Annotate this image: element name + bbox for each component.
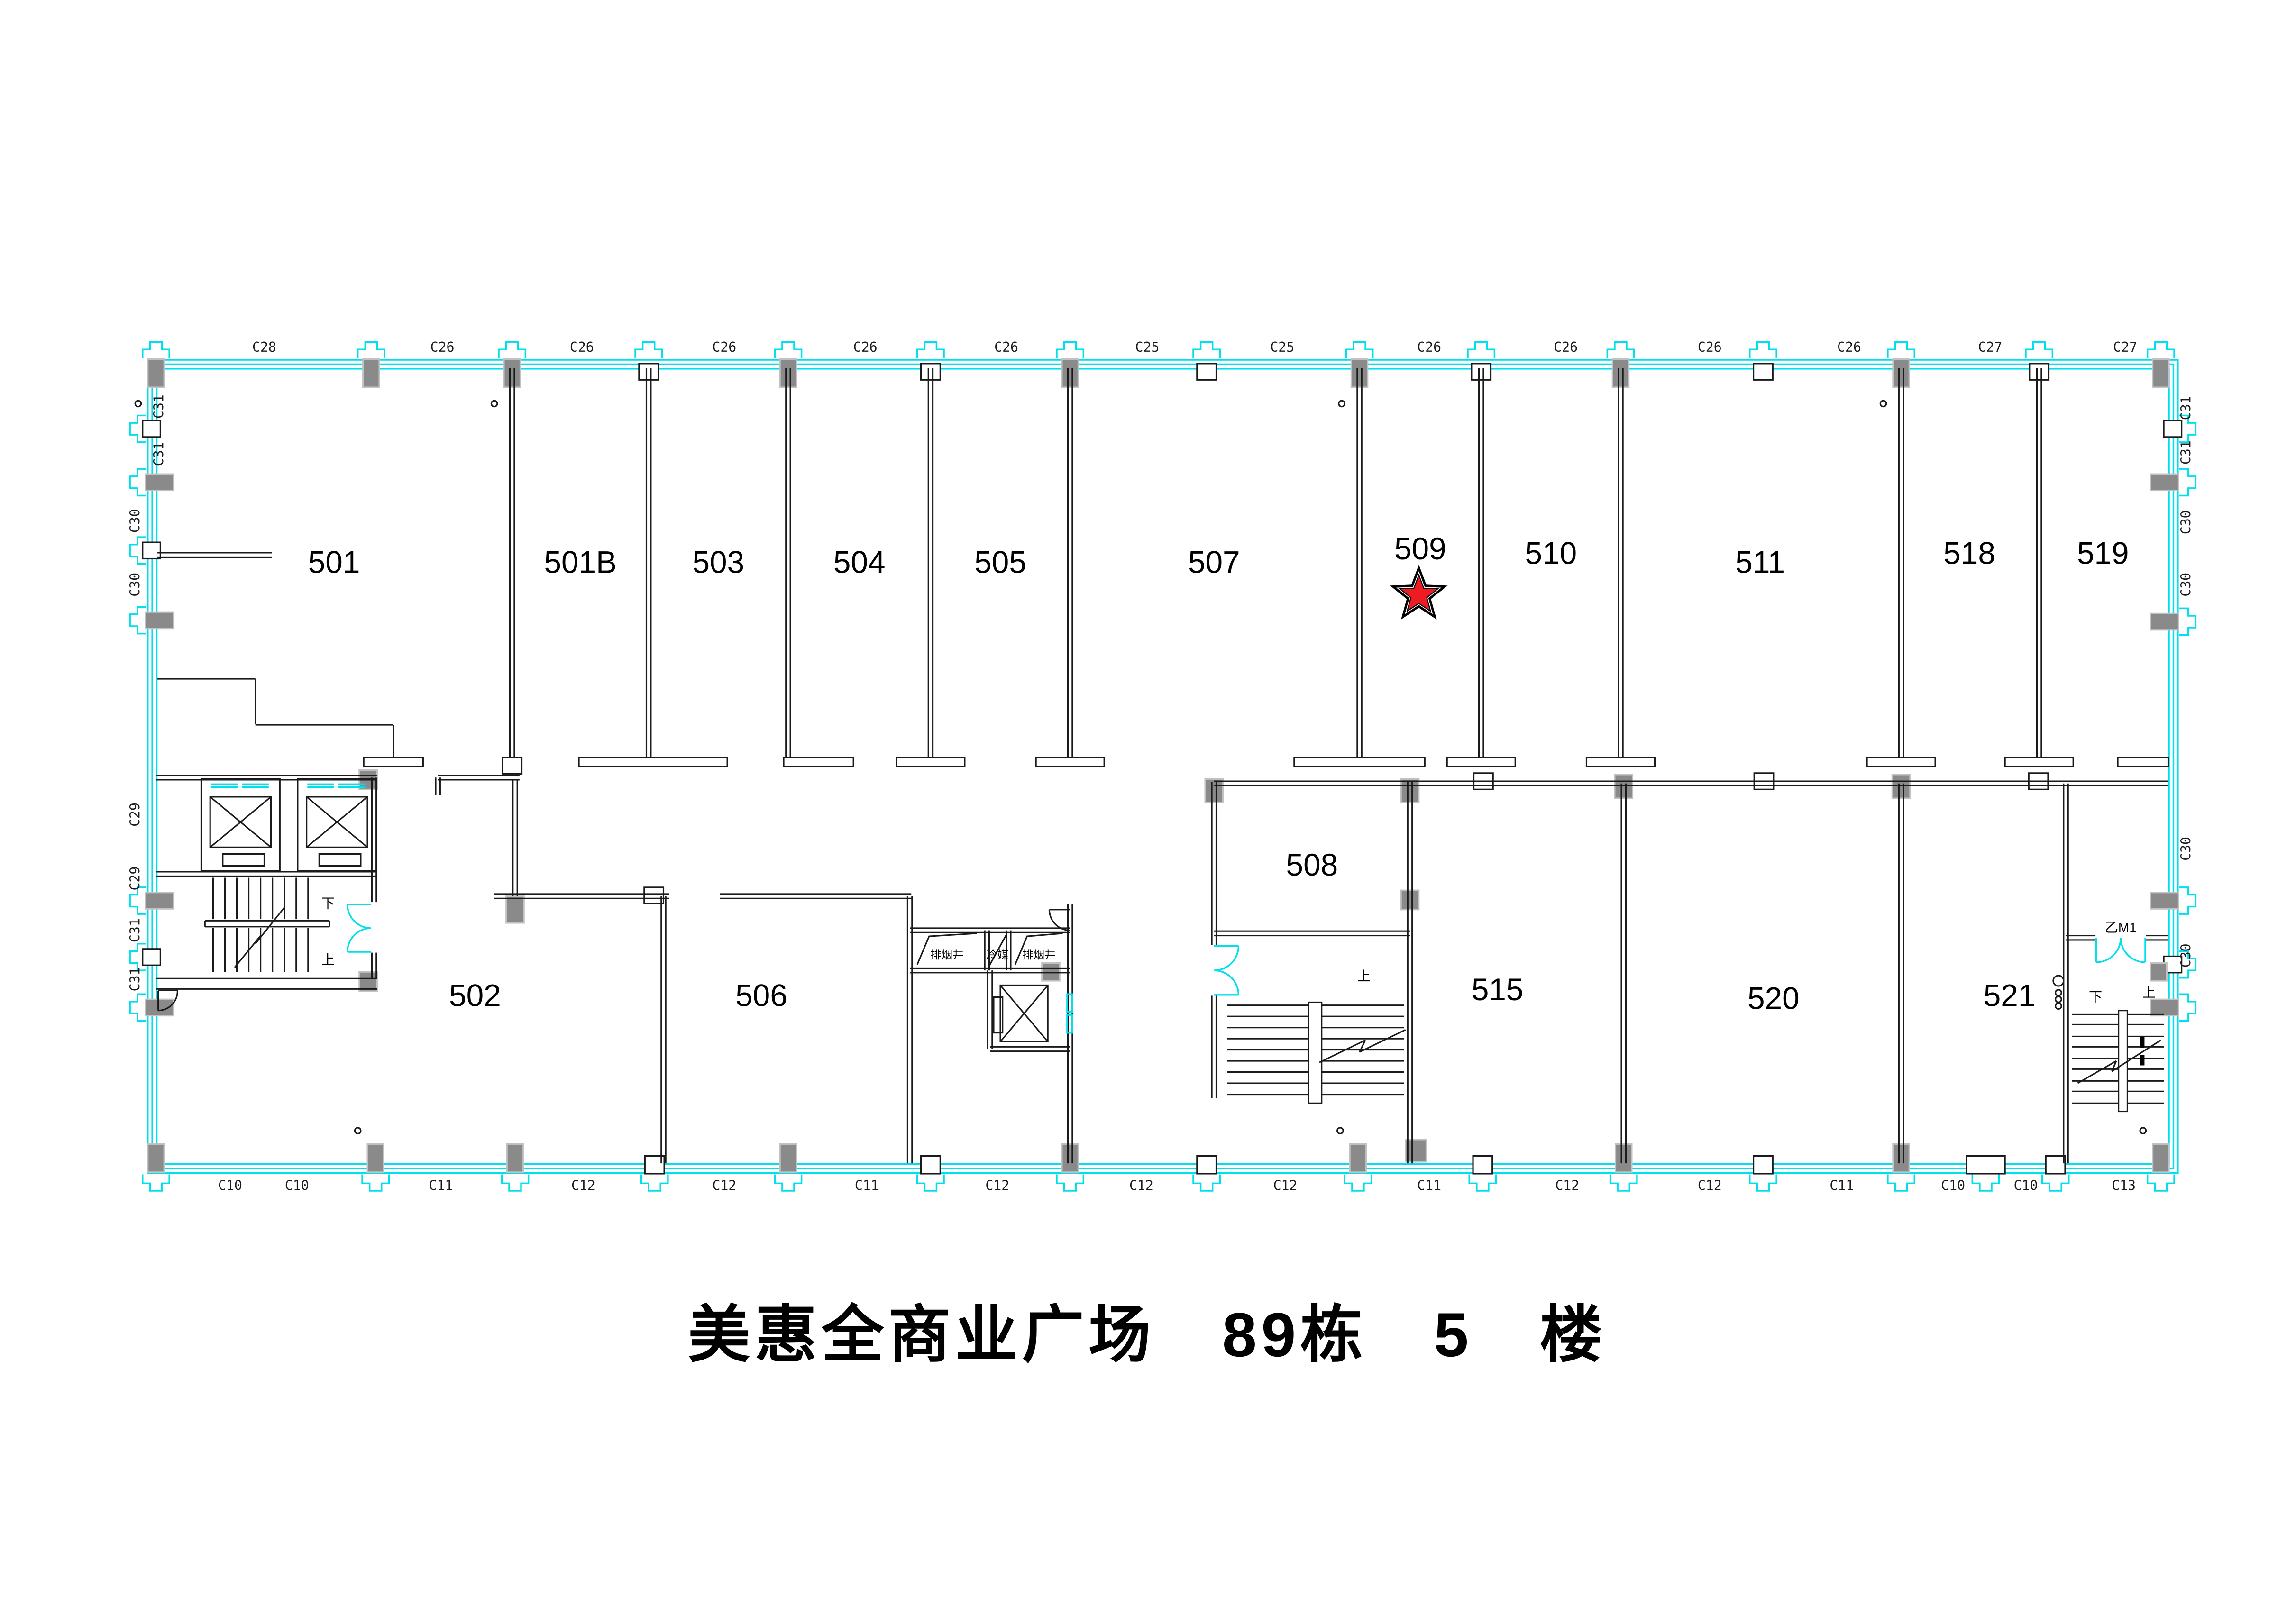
refrigerant-shaft-label: 冷媒 — [986, 949, 1008, 961]
room-label-518: 518 — [1943, 535, 1995, 570]
grid-label: C12 — [571, 1178, 595, 1193]
double-door-icon — [2096, 938, 2145, 962]
grid-label: C28 — [252, 339, 276, 355]
grid-label: C26 — [853, 339, 878, 355]
doors — [211, 784, 2145, 995]
grid-label: C10 — [285, 1178, 309, 1193]
grid-label: C26 — [712, 339, 736, 355]
stair-icon — [2072, 1011, 2164, 1112]
room-label-506: 506 — [735, 977, 787, 1013]
stair-icon — [205, 878, 329, 972]
grid-label: C11 — [1417, 1178, 1441, 1193]
stair-down-label: 下 — [321, 896, 335, 911]
grid-label: C11 — [429, 1178, 453, 1193]
room-labels: 501 501B 503 504 505 507 509 510 511 518… — [308, 531, 2129, 1015]
grid-label: C26 — [1554, 339, 1578, 355]
elevator-shaft-icon — [298, 779, 376, 871]
rooms-502-506-walls — [494, 894, 912, 1163]
grid-label: C12 — [1129, 1178, 1153, 1193]
room-label-509: 509 — [1394, 531, 1446, 566]
grid-label: C30 — [2178, 943, 2194, 968]
grid-label: C11 — [1829, 1178, 1854, 1193]
room-label-508: 508 — [1286, 847, 1338, 882]
room-label-510: 510 — [1525, 535, 1577, 570]
grid-label: C25 — [1135, 339, 1160, 355]
grid-label: C31 — [128, 967, 143, 991]
grid-label: C26 — [1698, 339, 1722, 355]
room-label-511: 511 — [1735, 544, 1785, 579]
grid-label: C30 — [2178, 837, 2194, 861]
room-label-501: 501 — [308, 544, 360, 579]
room-label-504: 504 — [833, 544, 886, 579]
room-label-502: 502 — [449, 977, 501, 1013]
room-label-503: 503 — [692, 544, 744, 579]
grid-label: C31 — [2178, 396, 2194, 420]
left-core — [156, 776, 520, 1011]
grid-label: C10 — [1941, 1178, 1965, 1193]
location-star-icon — [1392, 567, 1445, 618]
grid-label: C29 — [128, 803, 143, 827]
grid-label: C26 — [1837, 339, 1861, 355]
grid-label: C30 — [2178, 510, 2194, 534]
room-508-block — [1212, 782, 1412, 1163]
shaft-block — [910, 904, 1072, 1163]
room-label-520: 520 — [1747, 981, 1800, 1016]
room-label-505: 505 — [974, 544, 1026, 579]
room-label-501B: 501B — [544, 544, 616, 579]
room-label-519: 519 — [2077, 535, 2129, 570]
grid-label: C12 — [1555, 1178, 1579, 1193]
grid-label: C10 — [2014, 1178, 2038, 1193]
stair-up-label: 上 — [2142, 985, 2156, 1000]
elevator-door-icon — [211, 784, 366, 787]
grid-label: C27 — [2113, 339, 2137, 355]
plan-title: 美惠全商业广场 89栋 5 楼 — [688, 1300, 1607, 1370]
stair-icon — [1227, 1002, 1406, 1103]
grid-label: C11 — [855, 1178, 879, 1193]
grid-label: C12 — [712, 1178, 736, 1193]
double-door-icon — [348, 904, 371, 952]
grid-label: C27 — [1978, 339, 2002, 355]
grid-label: C12 — [985, 1178, 1009, 1193]
grid-label: C29 — [128, 867, 143, 891]
grid-label: C12 — [1273, 1178, 1298, 1193]
elevator-shaft-icon — [994, 985, 1048, 1041]
room-label-521: 521 — [1984, 977, 2036, 1013]
grid-label: C30 — [2178, 573, 2194, 597]
grid-label: C30 — [128, 573, 143, 597]
right-stair-core — [2053, 936, 2168, 1112]
elevator-shaft-icon — [201, 779, 280, 871]
fire-door-label: 乙M1 — [2105, 920, 2137, 935]
top-room-partitions — [157, 368, 2168, 774]
double-door-icon — [1214, 946, 1239, 995]
grid-label: C26 — [430, 339, 455, 355]
grid-label: C13 — [2112, 1178, 2136, 1193]
stair-down-label: 下 — [2089, 989, 2102, 1004]
grid-label: C26 — [994, 339, 1018, 355]
grid-label: C31 — [128, 918, 143, 942]
stair-up-label: 上 — [321, 952, 335, 968]
grid-label: C31 — [151, 442, 167, 466]
floor-plan-canvas: 501 501B 503 504 505 507 509 510 511 518… — [0, 0, 2296, 1607]
grid-label: C31 — [2178, 440, 2194, 465]
grid-label: C26 — [570, 339, 594, 355]
grid-label: C26 — [1417, 339, 1441, 355]
smoke-shaft-label: 排烟井 — [1022, 949, 1055, 961]
shaft-door-icon — [1049, 910, 1070, 931]
grid-label: C25 — [1270, 339, 1294, 355]
room-label-507: 507 — [1188, 544, 1240, 579]
grid-label: C10 — [218, 1178, 242, 1193]
grid-label: C31 — [151, 394, 167, 419]
grid-label: C12 — [1698, 1178, 1722, 1193]
smoke-shaft-label: 排烟井 — [930, 949, 963, 961]
room-label-515: 515 — [1472, 972, 1524, 1007]
wall-vent-icon — [2053, 976, 2064, 1009]
stair-up-label: 上 — [1357, 968, 1371, 984]
grid-label: C30 — [128, 509, 143, 533]
